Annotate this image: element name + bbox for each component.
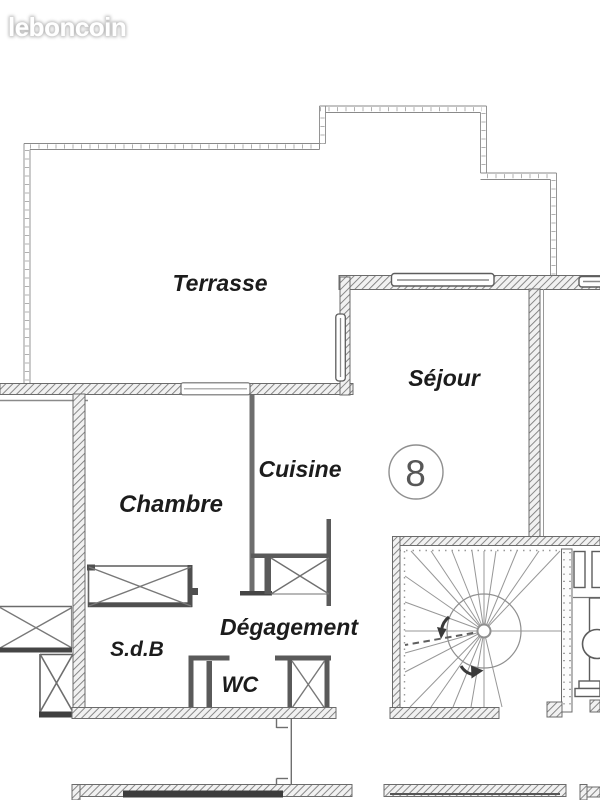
svg-text:Dégagement: Dégagement — [220, 614, 359, 640]
svg-text:WC: WC — [222, 672, 260, 697]
svg-text:leboncoin: leboncoin — [8, 12, 126, 42]
svg-text:Chambre: Chambre — [119, 491, 223, 518]
svg-text:Cuisine: Cuisine — [258, 456, 341, 482]
svg-text:Terrasse: Terrasse — [172, 270, 267, 296]
svg-text:Séjour: Séjour — [408, 365, 481, 391]
svg-text:8: 8 — [405, 453, 426, 494]
svg-text:S.d.B: S.d.B — [110, 638, 164, 661]
